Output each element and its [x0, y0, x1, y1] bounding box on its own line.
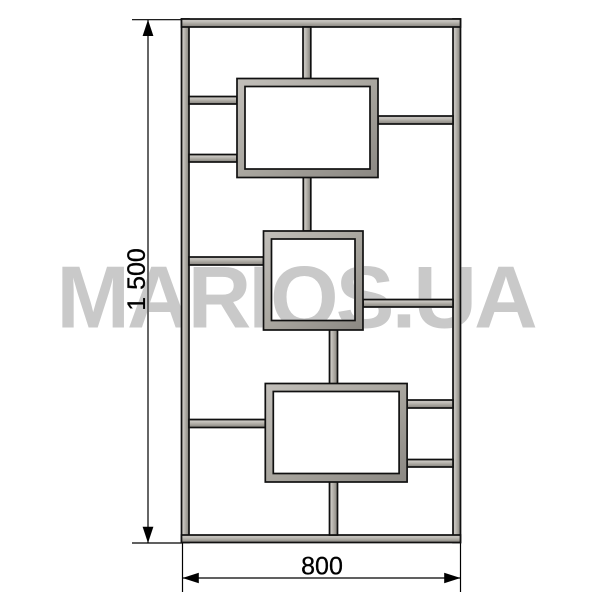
svg-text:800: 800: [301, 552, 343, 580]
svg-text:MARIOS.UA: MARIOS.UA: [57, 248, 537, 347]
